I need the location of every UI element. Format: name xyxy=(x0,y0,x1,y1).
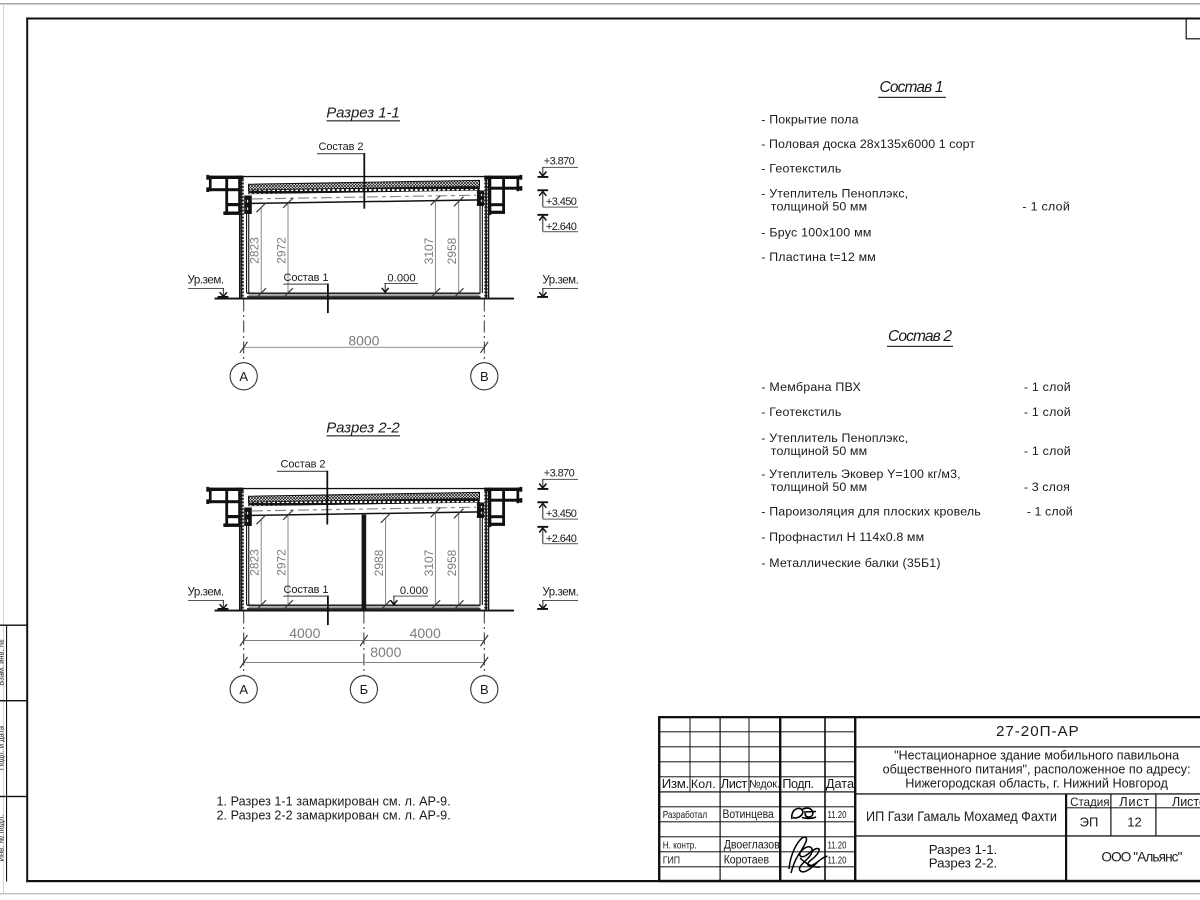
svg-text:Ур.зем.: Ур.зем. xyxy=(542,586,579,598)
svg-text:Двоеглазов: Двоеглазов xyxy=(724,839,780,851)
svg-text:- Утеплитель Пеноплэкс,: - Утеплитель Пеноплэкс, xyxy=(761,431,908,445)
svg-text:Разрез 1-1: Разрез 1-1 xyxy=(326,105,400,122)
svg-text:2958: 2958 xyxy=(445,237,459,264)
svg-text:общественного питания", распол: общественного питания", расположенное по… xyxy=(883,763,1191,777)
svg-text:11.20: 11.20 xyxy=(828,855,847,866)
svg-text:Н. контр.: Н. контр. xyxy=(663,839,697,851)
svg-text:0.000: 0.000 xyxy=(400,585,428,597)
svg-text:толщиной 50 мм: толщиной 50 мм xyxy=(771,480,867,494)
svg-text:Б: Б xyxy=(360,682,369,697)
svg-text:12: 12 xyxy=(1127,815,1141,830)
svg-text:4000: 4000 xyxy=(289,625,320,641)
svg-text:Ур.зем.: Ур.зем. xyxy=(188,586,225,598)
svg-text:- Геотекстиль: - Геотекстиль xyxy=(761,161,841,175)
svg-text:- Геотекстиль: - Геотекстиль xyxy=(761,405,841,419)
svg-text:А: А xyxy=(239,369,248,384)
svg-text:Состав 2: Состав 2 xyxy=(281,459,326,471)
svg-text:- 3 слоя: - 3 слоя xyxy=(1024,480,1070,494)
svg-text:Стадия: Стадия xyxy=(1070,795,1109,809)
svg-text:Разрез 2-2.: Разрез 2-2. xyxy=(929,855,998,870)
svg-text:ИП Гази Гамаль Мохамед Фахти: ИП Гази Гамаль Мохамед Фахти xyxy=(866,809,1057,824)
svg-text:- 1 слой: - 1 слой xyxy=(1027,504,1073,518)
svg-text:Изм.: Изм. xyxy=(662,776,689,791)
svg-text:2972: 2972 xyxy=(275,549,289,576)
svg-text:3107: 3107 xyxy=(422,237,436,264)
svg-text:Дата: Дата xyxy=(826,776,855,791)
svg-text:2958: 2958 xyxy=(445,549,459,576)
svg-text:2823: 2823 xyxy=(248,549,262,576)
svg-text:Состав 2: Состав 2 xyxy=(319,141,364,153)
svg-text:- 1 слой: - 1 слой xyxy=(1024,405,1071,419)
svg-text:- Мембрана ПВХ: - Мембрана ПВХ xyxy=(761,380,861,394)
svg-text:Состав 1: Состав 1 xyxy=(284,272,329,284)
svg-text:- Покрытие пола: - Покрытие пола xyxy=(761,113,858,127)
svg-text:Лист: Лист xyxy=(1119,794,1149,809)
svg-text:Коротаев: Коротаев xyxy=(724,854,769,866)
svg-text:- 1 слой: - 1 слой xyxy=(1022,200,1069,214)
svg-text:3107: 3107 xyxy=(422,549,436,576)
svg-text:- Утеплитель Эковер Y=100 кг/м: - Утеплитель Эковер Y=100 кг/м3, xyxy=(761,467,960,481)
svg-text:Подп. и дата: Подп. и дата xyxy=(0,725,5,770)
svg-text:2988: 2988 xyxy=(372,549,386,576)
svg-text:ООО "Альянс": ООО "Альянс" xyxy=(1101,850,1182,865)
svg-text:толщиной 50 мм: толщиной 50 мм xyxy=(771,444,867,458)
svg-text:- Пластина t=12 мм: - Пластина t=12 мм xyxy=(761,250,876,264)
svg-text:Взам. инв. №: Взам. инв. № xyxy=(0,639,5,685)
svg-text:0.000: 0.000 xyxy=(387,273,415,285)
svg-text:толщиной 50 мм: толщиной 50 мм xyxy=(771,200,867,214)
svg-text:Вотинцева: Вотинцева xyxy=(723,809,775,821)
svg-text:8000: 8000 xyxy=(348,332,379,348)
svg-text:Разрез 2-2: Разрез 2-2 xyxy=(326,420,400,437)
svg-text:Нижегородская область, г. Нижн: Нижегородская область, г. Нижний Новгоро… xyxy=(905,777,1168,791)
svg-text:Состав 1: Состав 1 xyxy=(880,79,944,96)
svg-text:2972: 2972 xyxy=(275,237,289,264)
svg-text:Состав 1: Состав 1 xyxy=(284,584,329,596)
svg-text:8000: 8000 xyxy=(370,644,401,660)
svg-text:ГИП: ГИП xyxy=(663,854,680,866)
svg-text:1. Разрез 1-1 замаркирован см.: 1. Разрез 1-1 замаркирован см. л. АР-9. xyxy=(217,794,451,808)
svg-text:- Утеплитель Пеноплэкс,: - Утеплитель Пеноплэкс, xyxy=(761,187,908,201)
svg-text:В: В xyxy=(480,682,489,697)
svg-text:- Половая доска 28х135х6000 1: - Половая доска 28х135х6000 1 сорт xyxy=(761,137,975,151)
svg-text:+2.640: +2.640 xyxy=(546,533,577,545)
svg-text:Кол.: Кол. xyxy=(691,777,716,791)
svg-text:2823: 2823 xyxy=(248,237,262,264)
svg-text:Разработал: Разработал xyxy=(663,809,707,821)
svg-text:- Профнастил Н 114х0.8 мм: - Профнастил Н 114х0.8 мм xyxy=(761,530,924,544)
svg-text:11.20: 11.20 xyxy=(828,840,847,851)
svg-text:"Нестационарное здание мобильн: "Нестационарное здание мобильного павиль… xyxy=(894,749,1179,763)
svg-text:+3.870: +3.870 xyxy=(544,156,575,168)
svg-text:+3.870: +3.870 xyxy=(544,468,575,480)
svg-text:Ур.зем.: Ур.зем. xyxy=(542,274,579,286)
svg-text:11.20: 11.20 xyxy=(828,810,847,821)
svg-text:2. Разрез 2-2 замаркирован см.: 2. Разрез 2-2 замаркирован см. л. АР-9. xyxy=(217,808,451,822)
svg-text:- 1 слой: - 1 слой xyxy=(1024,444,1071,458)
svg-text:+3.450: +3.450 xyxy=(546,196,577,208)
svg-text:Инв. № подл.: Инв. № подл. xyxy=(0,815,5,862)
svg-text:Листов: Листов xyxy=(1172,795,1200,809)
svg-text:4000: 4000 xyxy=(410,625,441,641)
svg-text:Подп.: Подп. xyxy=(782,777,814,791)
svg-text:№док.: №док. xyxy=(749,779,780,791)
svg-text:- Брус 100х100 мм: - Брус 100х100 мм xyxy=(761,225,871,239)
svg-text:Состав 2: Состав 2 xyxy=(888,328,952,345)
svg-text:В: В xyxy=(480,369,489,384)
svg-text:- Пароизоляция для плоских кро: - Пароизоляция для плоских кровель xyxy=(761,504,980,518)
svg-text:- 1 слой: - 1 слой xyxy=(1024,380,1071,394)
svg-text:Лист: Лист xyxy=(721,776,748,791)
svg-text:ЭП: ЭП xyxy=(1080,815,1099,830)
svg-text:+3.450: +3.450 xyxy=(546,508,577,520)
svg-text:+2.640: +2.640 xyxy=(546,221,577,233)
svg-text:Ур.зем.: Ур.зем. xyxy=(188,274,225,286)
svg-text:- Металлические балки (35Б1): - Металлические балки (35Б1) xyxy=(761,556,940,570)
svg-text:27-20П-АР: 27-20П-АР xyxy=(996,723,1079,740)
svg-text:А: А xyxy=(239,682,248,697)
